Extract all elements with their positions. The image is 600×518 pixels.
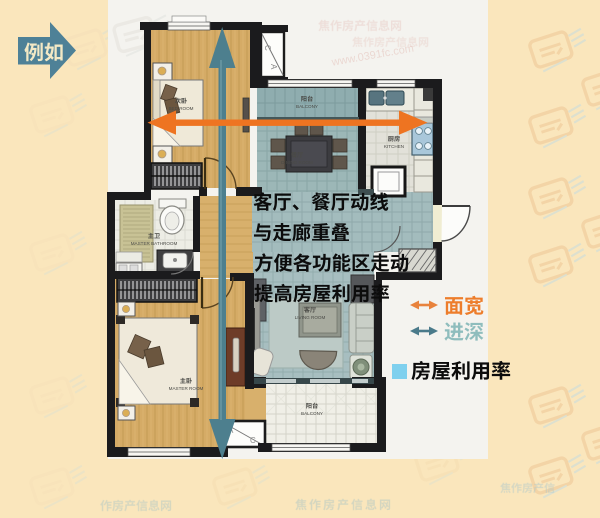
svg-text:A: A (269, 64, 278, 70)
svg-text:MASTER ROOM: MASTER ROOM (169, 386, 204, 391)
svg-text:BALCONY: BALCONY (296, 104, 318, 109)
svg-text:MASTER BATHROOM: MASTER BATHROOM (131, 241, 178, 246)
svg-text:KITCHEN: KITCHEN (384, 144, 404, 149)
svg-text:BALCONY: BALCONY (301, 411, 323, 416)
svg-text:DINING ROOM: DINING ROOM (281, 160, 313, 165)
svg-text:C: C (250, 436, 256, 445)
svg-text:C: C (263, 45, 272, 51)
svg-text:LIVING ROOM: LIVING ROOM (295, 315, 326, 320)
svg-text:BED ROOM: BED ROOM (168, 106, 193, 111)
